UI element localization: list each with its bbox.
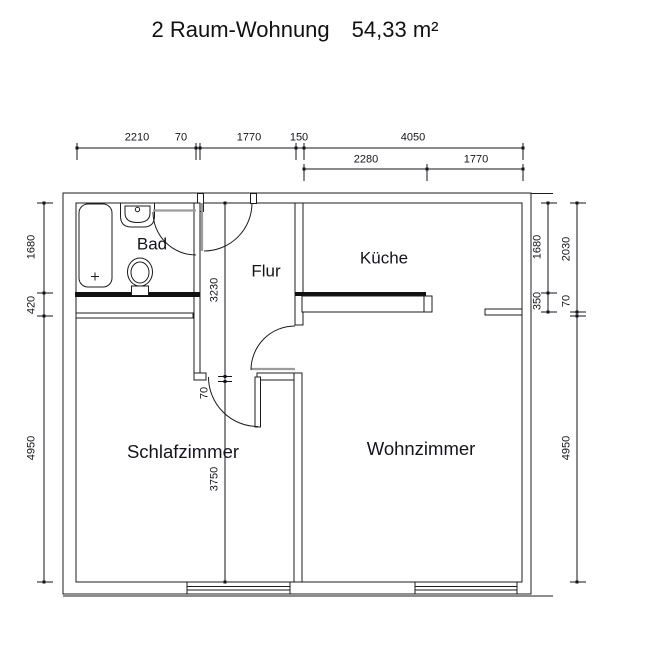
dim-top-150: 150	[290, 133, 308, 144]
room-label-schlafzimmer: Schlafzimmer	[127, 443, 239, 462]
schlafzimmer-door-arc	[209, 377, 259, 427]
kueche-counter-wall	[302, 296, 432, 312]
page-title: 2 Raum-Wohnung 54,33 m²	[0, 17, 590, 43]
dim-top-2210: 2210	[125, 133, 149, 144]
dim-top-70: 70	[175, 133, 187, 144]
apartment-name: 2 Raum-Wohnung	[152, 17, 330, 43]
dim-right-outer-2030: 2030	[562, 237, 573, 261]
schlafzimmer-door-leaf	[255, 377, 261, 427]
dim-left-4950: 4950	[27, 436, 38, 460]
apartment-area: 54,33 m²	[352, 17, 439, 43]
dim-flur-3750: 3750	[210, 467, 221, 491]
dimension-lines	[37, 143, 586, 584]
dim-top-1770: 1770	[237, 133, 261, 144]
dim-left-1680: 1680	[27, 235, 38, 259]
kueche-wall-stub	[485, 309, 522, 315]
floor-plan-page: 2 Raum-Wohnung 54,33 m² Bad Flur Küche S…	[0, 0, 665, 661]
dim-top-4050: 4050	[401, 133, 425, 144]
window-schlafzimmer	[187, 582, 290, 594]
dim-flur-70: 70	[200, 387, 211, 399]
room-label-wohnzimmer: Wohnzimmer	[367, 440, 476, 459]
bathtub-icon	[79, 204, 112, 287]
toilet-icon	[128, 258, 153, 296]
floor-plan-drawing	[0, 0, 665, 661]
room-label-flur: Flur	[251, 263, 280, 280]
dim-left-420: 420	[27, 296, 38, 314]
room-label-bad: Bad	[137, 236, 167, 253]
kueche-massive-wall	[295, 292, 426, 296]
dim-flur-3230: 3230	[210, 278, 221, 302]
dim-right-inner-350: 350	[533, 292, 544, 310]
room-label-kueche: Küche	[360, 250, 408, 267]
dim-right-outer-70: 70	[562, 295, 573, 307]
entrance-door-arc	[204, 203, 252, 251]
dim-top2-2280: 2280	[354, 155, 378, 166]
entrance-opening	[198, 194, 257, 212]
window-wohnzimmer	[415, 582, 517, 594]
dim-right-inner-1680: 1680	[533, 235, 544, 259]
sink-icon	[121, 203, 155, 227]
dim-top2-1770: 1770	[464, 155, 488, 166]
dim-right-outer-4950: 4950	[562, 436, 573, 460]
wohnzimmer-door-arc	[251, 326, 295, 370]
